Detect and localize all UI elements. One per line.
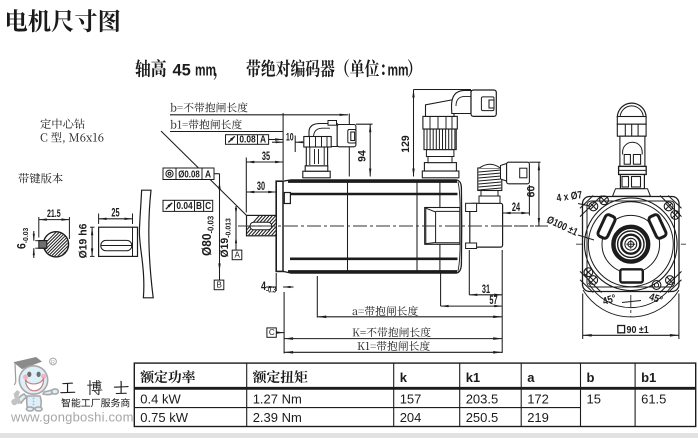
svg-text:C: C [269,327,275,337]
svg-text:129: 129 [400,135,412,152]
svg-text:A: A [260,134,266,146]
svg-text:21.5: 21.5 [47,208,61,220]
svg-text:R: R [51,360,55,366]
svg-text:35: 35 [262,151,271,164]
svg-text:A: A [235,249,241,259]
svg-text:Ø0.08: Ø0.08 [178,169,199,180]
svg-text:45: 45 [173,62,191,80]
svg-text:30: 30 [257,181,265,194]
svg-text:90 ±1: 90 ±1 [627,324,650,336]
svg-text:www.gongboshi.com: www.gongboshi.com [10,410,134,425]
svg-text:B: B [196,200,202,212]
svg-text:B: B [217,279,223,289]
svg-text:10: 10 [286,131,294,143]
svg-text:57: 57 [489,295,497,308]
svg-text:24: 24 [512,201,521,214]
svg-text:mm: mm [388,62,409,80]
svg-text:mm: mm [195,62,216,80]
svg-text:94: 94 [356,150,368,162]
svg-text:A: A [205,169,211,181]
svg-text:Ø19 h6: Ø19 h6 [77,224,89,259]
svg-text:C: C [205,200,211,212]
svg-text:25: 25 [111,207,120,220]
svg-text:0.04: 0.04 [176,200,193,212]
svg-text:60: 60 [525,186,537,198]
svg-text:0.08: 0.08 [239,134,255,146]
